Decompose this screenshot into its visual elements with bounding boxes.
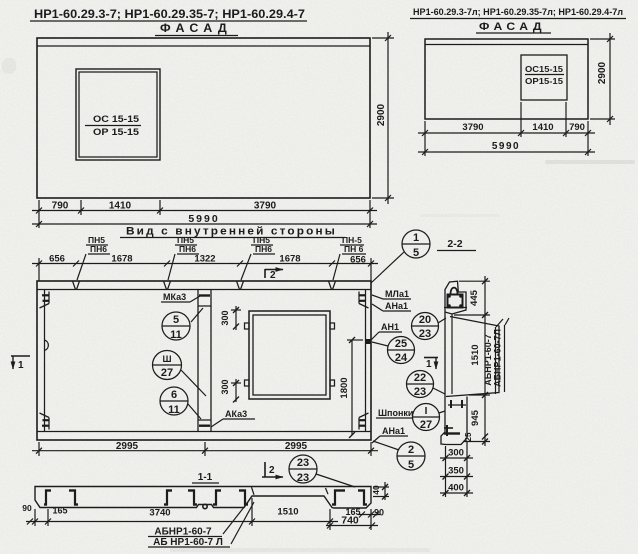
svg-text:350: 350 [448, 466, 464, 477]
svg-text:ОР 15-15: ОР 15-15 [93, 127, 140, 138]
svg-text:1322: 1322 [194, 254, 215, 265]
svg-text:1510: 1510 [277, 507, 298, 518]
svg-text:НР1-60.29.3-7л; НР1-60.29.35-7: НР1-60.29.3-7л; НР1-60.29.35-7л; НР1-60.… [413, 7, 623, 18]
svg-text:АБНР1-60-7Л: АБНР1-60-7Л [493, 329, 503, 387]
svg-text:ОС15-15: ОС15-15 [525, 64, 563, 74]
svg-text:2-2: 2-2 [447, 238, 462, 250]
svg-text:АБ НР1-60-7 Л: АБ НР1-60-7 Л [153, 537, 223, 548]
svg-text:656: 656 [350, 255, 366, 266]
svg-text:2900: 2900 [376, 103, 387, 126]
svg-text:2: 2 [270, 270, 276, 281]
svg-text:ФАСАД: ФАСАД [479, 21, 546, 33]
svg-text:11: 11 [168, 404, 180, 416]
svg-text:25: 25 [395, 338, 407, 350]
svg-text:400: 400 [448, 483, 464, 494]
svg-text:90: 90 [22, 503, 32, 513]
svg-text:5: 5 [173, 314, 179, 326]
svg-text:22: 22 [414, 372, 426, 384]
svg-text:НР1-60.29.3-7; НР1-60.29.35-7;: НР1-60.29.3-7; НР1-60.29.35-7; НР1-60.29… [34, 7, 305, 21]
svg-text:АКа3: АКа3 [225, 409, 247, 419]
svg-text:27: 27 [420, 419, 432, 431]
svg-text:АБНР1-60-7: АБНР1-60-7 [154, 527, 212, 538]
svg-text:АБНР1-60-7: АБНР1-60-7 [483, 334, 493, 386]
svg-text:АНа1: АНа1 [382, 426, 405, 436]
svg-text:1: 1 [18, 360, 24, 371]
svg-text:1678: 1678 [111, 254, 132, 265]
svg-text:300: 300 [220, 379, 230, 394]
svg-text:Вид с внутренней стороны: Вид с внутренней стороны [126, 226, 337, 238]
svg-text:Шпонки: Шпонки [378, 408, 413, 418]
svg-text:2995: 2995 [285, 441, 308, 452]
svg-text:5990: 5990 [188, 213, 219, 225]
svg-text:2: 2 [408, 444, 414, 456]
svg-text:1678: 1678 [279, 254, 300, 265]
svg-text:6: 6 [171, 389, 177, 401]
svg-text:5: 5 [413, 247, 419, 259]
svg-text:23: 23 [419, 328, 431, 340]
svg-text:1410: 1410 [109, 201, 132, 212]
svg-text:1510: 1510 [470, 344, 481, 365]
svg-text:23: 23 [297, 457, 309, 469]
svg-text:445: 445 [469, 289, 480, 306]
svg-text:11: 11 [170, 329, 182, 341]
svg-text:23: 23 [414, 386, 426, 398]
svg-text:1: 1 [413, 232, 419, 244]
svg-text:40: 40 [371, 485, 381, 495]
svg-text:3790: 3790 [462, 122, 483, 133]
svg-text:АНа1: АНа1 [385, 301, 408, 311]
svg-text:ОР15-15: ОР15-15 [525, 76, 563, 86]
svg-text:2995: 2995 [116, 441, 139, 452]
svg-text:27: 27 [161, 367, 173, 379]
svg-text:5990: 5990 [492, 141, 520, 152]
svg-text:ФАСАД: ФАСАД [160, 21, 232, 35]
svg-text:24: 24 [395, 352, 408, 364]
svg-text:ПН 6: ПН 6 [344, 244, 364, 254]
svg-text:165: 165 [52, 506, 67, 516]
svg-text:20: 20 [419, 314, 431, 326]
svg-text:2: 2 [269, 465, 275, 476]
svg-text:300: 300 [220, 310, 230, 325]
svg-text:2900: 2900 [597, 61, 608, 84]
svg-text:945: 945 [470, 409, 481, 426]
svg-text:25: 25 [464, 432, 473, 441]
svg-text:3740: 3740 [149, 508, 170, 519]
svg-text:3790: 3790 [254, 201, 277, 212]
svg-text:1: 1 [426, 359, 432, 370]
svg-text:ОС 15-15: ОС 15-15 [93, 114, 140, 125]
svg-text:790: 790 [52, 201, 69, 212]
svg-text:90: 90 [374, 508, 384, 518]
svg-text:МЛа1: МЛа1 [385, 289, 409, 299]
svg-text:23: 23 [297, 472, 309, 484]
svg-text:ПН6: ПН6 [179, 244, 196, 254]
svg-text:I: I [425, 406, 428, 417]
svg-text:656: 656 [49, 254, 65, 265]
svg-text:740: 740 [341, 515, 359, 527]
svg-text:300: 300 [448, 448, 464, 459]
svg-text:Ш: Ш [162, 354, 171, 364]
svg-text:ПН6: ПН6 [255, 244, 272, 254]
svg-text:1800: 1800 [339, 377, 350, 398]
svg-text:1410: 1410 [532, 122, 553, 133]
svg-text:ПН6: ПН6 [90, 244, 107, 254]
svg-text:АН1: АН1 [381, 322, 399, 332]
svg-text:790: 790 [569, 122, 585, 133]
svg-text:5: 5 [408, 459, 414, 471]
svg-text:1-1: 1-1 [198, 472, 213, 483]
svg-text:МКа3: МКа3 [163, 292, 186, 302]
